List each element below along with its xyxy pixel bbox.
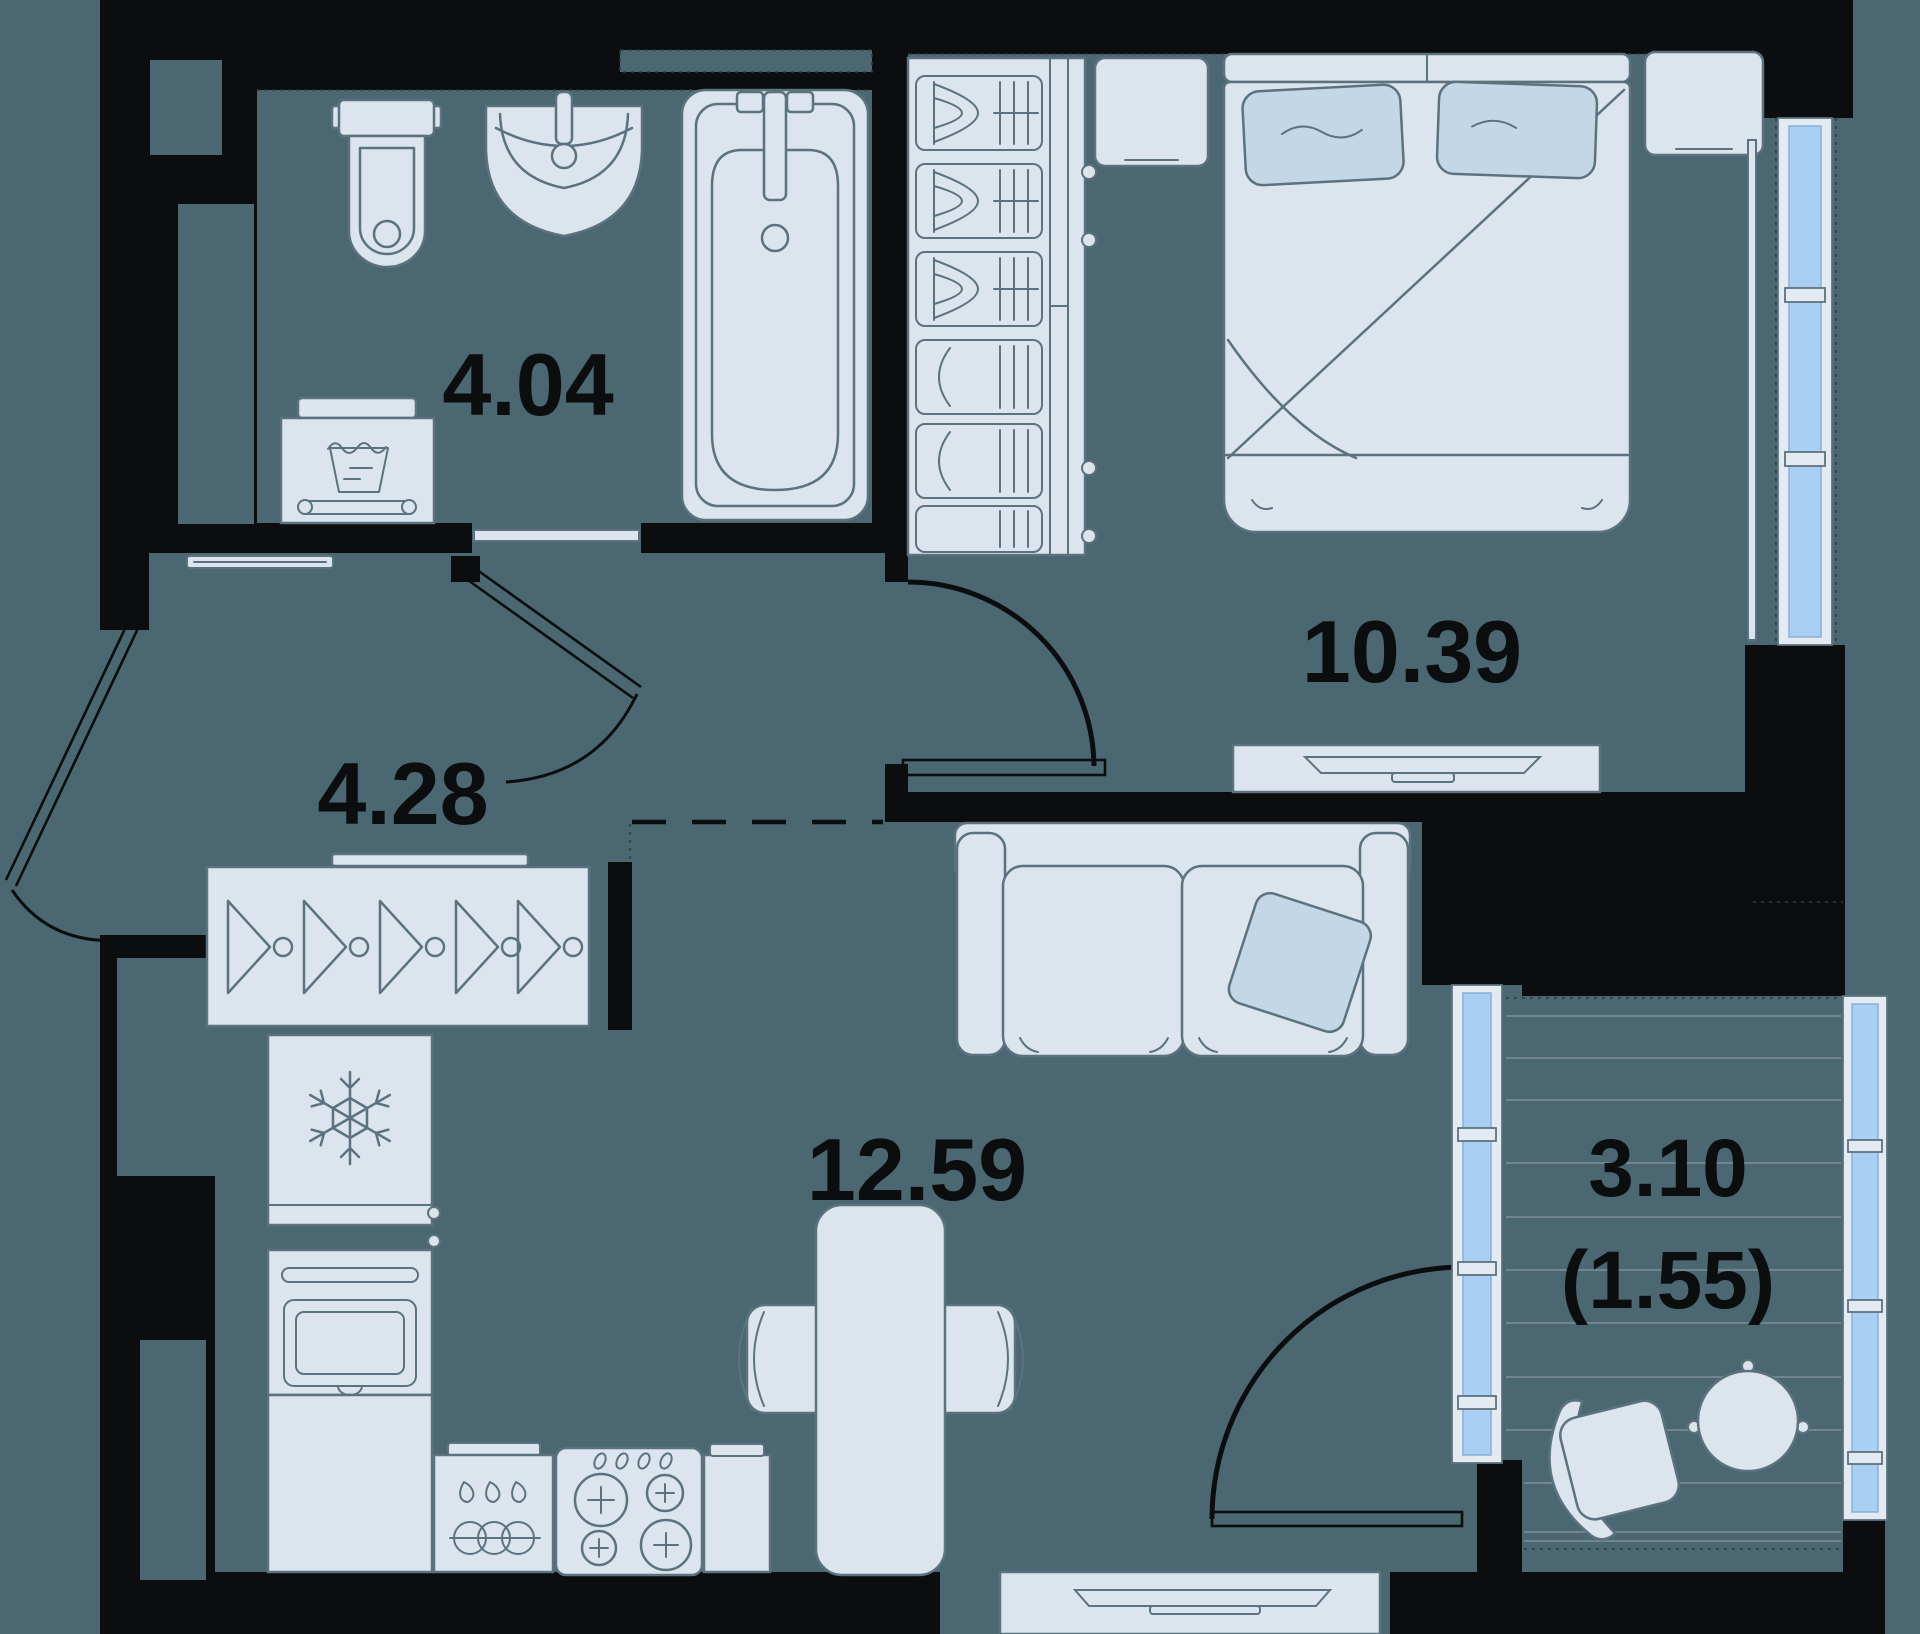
sink-icon — [486, 92, 642, 236]
balcony-glazing-right — [1843, 996, 1887, 1520]
floor-plan-canvas: 4.04 4.28 — [0, 0, 1920, 1634]
room-label-balcony: 3.10 — [1588, 1123, 1748, 1214]
tv-console-icon — [1000, 1572, 1380, 1634]
washing-machine-icon — [281, 398, 434, 523]
bedroom-door — [903, 582, 1105, 775]
nightstand-left-icon — [1095, 58, 1208, 166]
pillow-icon — [1242, 84, 1405, 186]
stove-icon — [556, 1448, 702, 1575]
room-label-bedroom: 10.39 — [1302, 602, 1522, 701]
sink-cabinet-icon — [434, 1443, 553, 1572]
wardrobe-icon — [908, 58, 1096, 555]
bathtub-icon — [682, 90, 868, 520]
room-label-kitchen-living: 12.59 — [807, 1120, 1027, 1219]
room-hallway: 4.28 — [6, 556, 589, 1026]
room-label-bathroom: 4.04 — [442, 335, 613, 434]
nightstand-right-icon — [1645, 52, 1763, 155]
room-bedroom: 10.39 — [903, 52, 1836, 792]
sofa-icon — [955, 823, 1410, 1056]
dining-table-icon — [816, 1205, 945, 1575]
toilet-icon — [332, 100, 441, 267]
room-label-hallway: 4.28 — [317, 744, 488, 843]
bed-icon — [1224, 54, 1630, 532]
balcony-armchair-icon — [1535, 1380, 1688, 1548]
coat-rack-icon — [207, 854, 589, 1026]
balcony-glazing-left — [1452, 985, 1502, 1463]
floor-plan-svg: 4.04 4.28 — [0, 0, 1920, 1634]
room-bathroom: 4.04 — [281, 90, 868, 782]
tv-dresser-icon — [1233, 745, 1600, 792]
oven-icon — [268, 1250, 432, 1395]
bedroom-window — [1748, 118, 1836, 645]
room-label-balcony-secondary: (1.55) — [1561, 1235, 1775, 1326]
entry-door — [6, 616, 141, 941]
wall-vent-niche — [620, 50, 872, 72]
balcony-door — [1212, 1240, 1470, 1526]
shoe-shelf-icon — [187, 556, 333, 568]
pillow-icon — [1436, 81, 1597, 178]
refrigerator-icon — [268, 1035, 440, 1247]
